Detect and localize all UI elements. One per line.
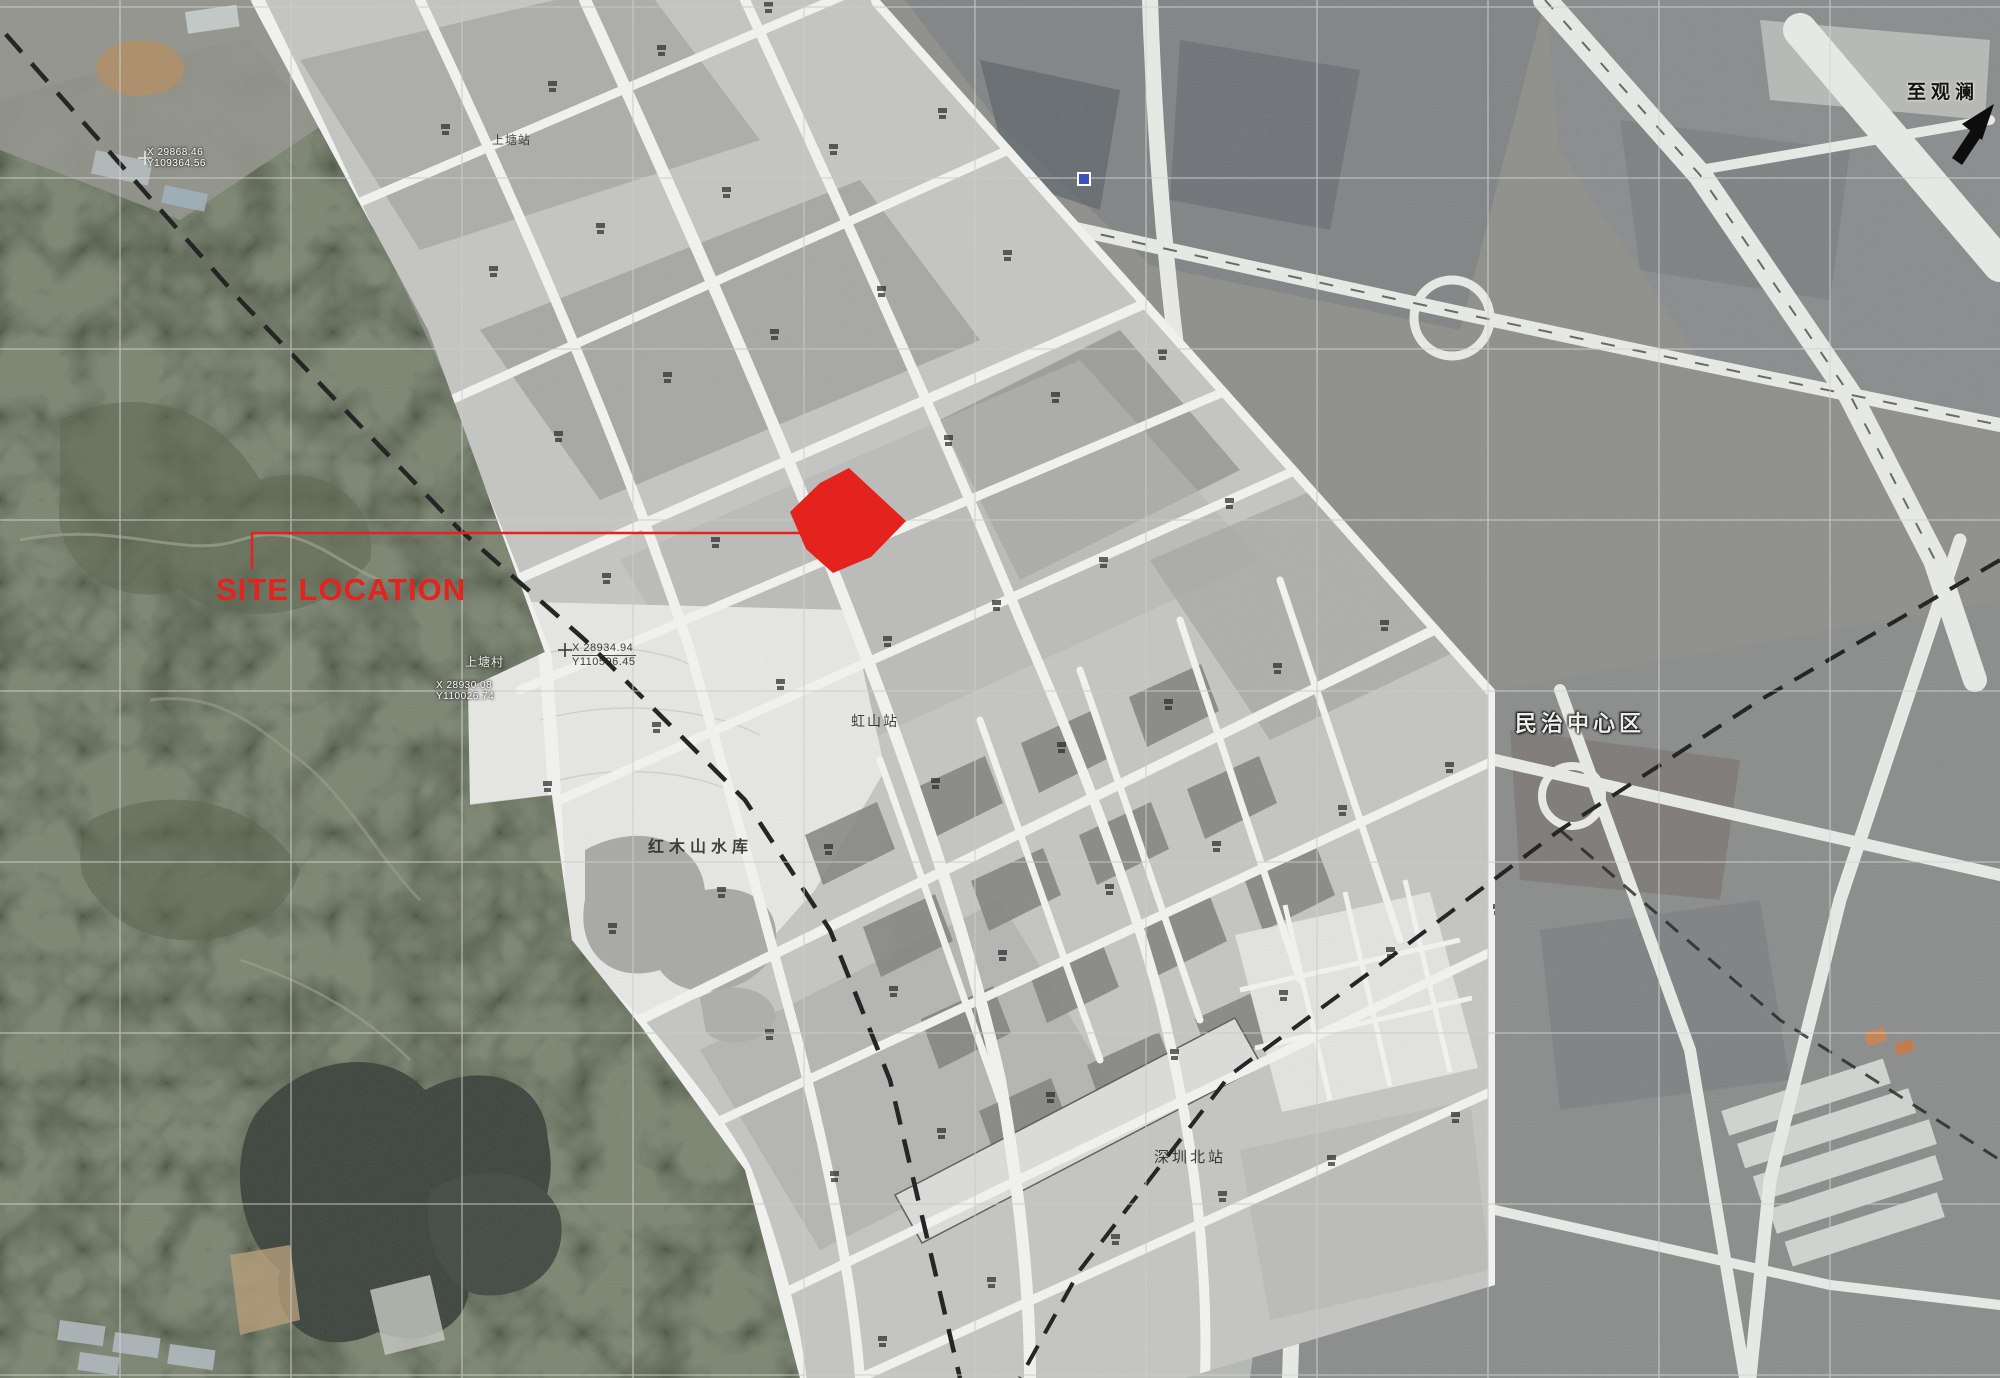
image-grain [0, 0, 2000, 1378]
map-canvas [0, 0, 2000, 1378]
blue-square-marker [1078, 173, 1090, 185]
site-location-map[interactable]: SITE LOCATION 上塘站 上塘村 虹山站 红木山水库 深圳北站 民治中… [0, 0, 2000, 1378]
